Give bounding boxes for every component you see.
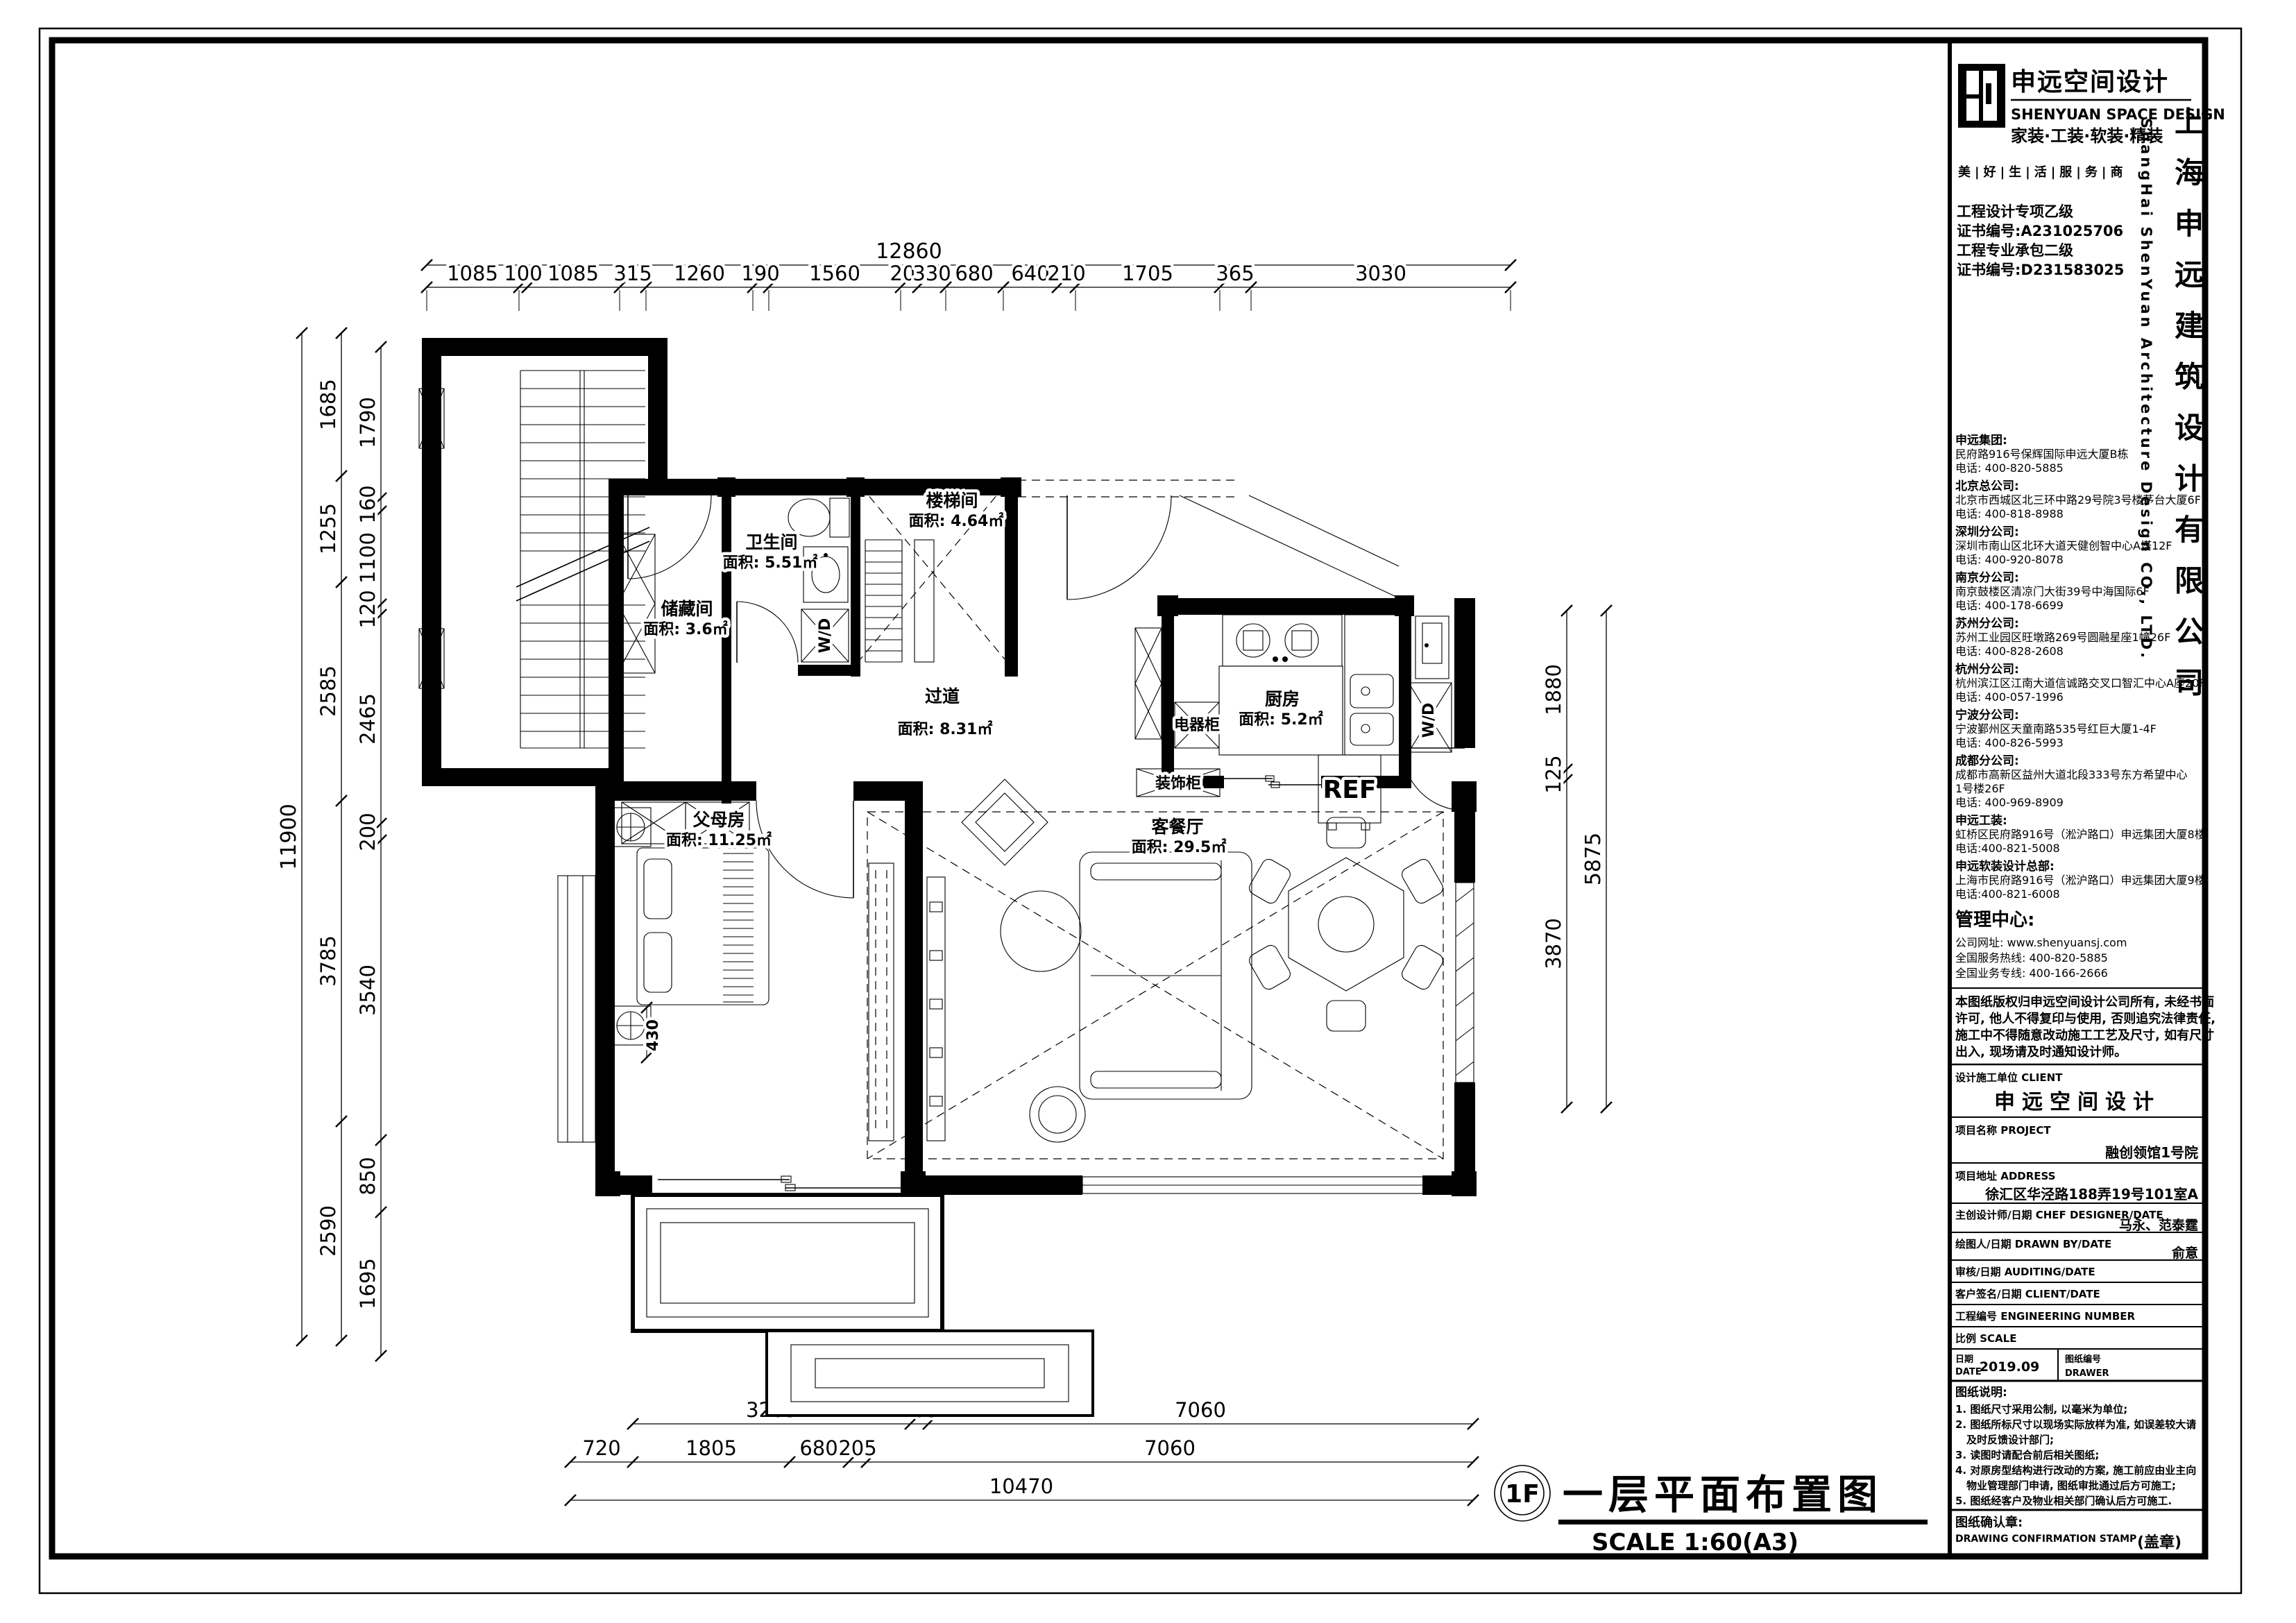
room-label-stairhall: 楼梯间	[926, 491, 978, 511]
room-area-living: 面积: 29.5㎡	[1132, 838, 1227, 856]
dim-left-mid: 2585	[316, 665, 340, 717]
dim-left-overall: 11900	[277, 804, 301, 869]
notes-title: 图纸说明:	[1955, 1385, 2007, 1400]
washer-dryer-label: W/D	[817, 618, 834, 654]
notes-line: 及时反馈设计部门;	[1966, 1434, 2054, 1446]
hall-door	[1067, 495, 1171, 600]
dim-top-seg: 1560	[809, 262, 860, 285]
office-line: 电话:400-821-5008	[1955, 842, 2060, 855]
date-row: 日期 DATE 2019.09 图纸编号 DRAWER	[1955, 1349, 2109, 1381]
notes-line: 5. 图纸经客户及物业相关部门确认后方可施工.	[1955, 1495, 2172, 1507]
office-line: 电话: 400-057-1996	[1955, 690, 2064, 704]
drawing-scale: SCALE 1:60(A3)	[1592, 1529, 1798, 1556]
row-label-scale: 比例 SCALE	[1955, 1332, 2016, 1345]
dim-left-mid: 1685	[316, 379, 340, 430]
notes-line: 物业管理部门申请, 图纸审批通过后方可施工;	[1966, 1479, 2176, 1492]
decor-cabinet-label: 装饰柜	[1155, 774, 1201, 792]
washer-dryer-label: W/D	[1420, 703, 1438, 738]
dimension-chain-left: 11900 1685 1255 2585 3785 2590 1790 160 …	[277, 328, 386, 1361]
dim-top-overall: 12860	[876, 239, 942, 264]
room-area-storage: 面积: 3.6㎡	[643, 620, 727, 638]
logo-slogan: 美|好|生|活|服|务|商	[1958, 164, 2127, 180]
dim-top-seg: 365	[1216, 262, 1254, 285]
confirmation-stamp: 图纸确认章: DRAWING CONFIRMATION STAMP (盖章)	[1955, 1515, 2182, 1552]
stair-hall: 楼梯间 面积: 4.64㎡	[860, 486, 1005, 662]
drawer-label-cn: 图纸编号	[2065, 1354, 2101, 1365]
office-line: 电话: 400-826-5993	[1955, 736, 2064, 749]
management-line: 全国业务专线: 400-166-2666	[1955, 967, 2108, 980]
parents-door	[756, 801, 853, 898]
office-title: 宁波分公司:	[1955, 708, 2019, 722]
office-title: 申远工装:	[1955, 813, 2007, 828]
copyright-line: 施工中不得随意改动施工工艺及尺寸, 如有尺寸	[1955, 1028, 2214, 1043]
notes: 图纸说明: 1. 图纸尺寸采用公制, 以毫米为单位; 2. 图纸所标尺寸以现场实…	[1955, 1385, 2196, 1507]
management-line: 全国服务热线: 400-820-5885	[1955, 951, 2108, 965]
dim-top-seg: 1705	[1122, 262, 1173, 285]
company-en-vertical: ShangHai ShenYuan Architecture Design CO…	[2138, 118, 2154, 661]
dim-430: 430	[645, 1019, 662, 1051]
dim-top-seg: 1260	[674, 262, 725, 285]
living-window-band	[1082, 1177, 1424, 1193]
kitchen-sliding-door	[1216, 776, 1325, 788]
office-line: 民府路916号保辉国际申远大厦B栋	[1955, 448, 2129, 461]
stamp-label-en: DRAWING CONFIRMATION STAMP	[1955, 1533, 2136, 1545]
office-line: 成都市高新区益州大道北段333号东方希望中心	[1955, 768, 2188, 781]
room-label-storage: 储藏间	[661, 599, 713, 619]
toilet	[788, 498, 849, 537]
stamp-label-cn: 图纸确认章:	[1955, 1515, 2023, 1530]
dim-left-mid: 1255	[316, 503, 340, 554]
dimension-chain-top: 12860 1085 100 1085 315 1260 190 1560 20…	[421, 239, 1516, 311]
dim-bottom-r1: 7060	[1175, 1398, 1226, 1422]
copyright-line: 许可, 他人不得复印与使用, 否则追究法律责任,	[1955, 1011, 2216, 1026]
right-wall-entry: W/D	[1402, 598, 1477, 1175]
dim-left-inner: 1100	[356, 532, 380, 584]
dim-left-mid: 3785	[316, 935, 340, 987]
dim-bottom-overall: 10470	[989, 1475, 1053, 1498]
dim-top-seg: 640	[1011, 262, 1049, 285]
notes-line: 4. 对原房型结构进行改动的方案, 施工前应由业主向	[1955, 1464, 2196, 1477]
sofa	[1080, 852, 1252, 1099]
dim-left-inner: 120	[356, 590, 380, 628]
room-area-stairhall: 面积: 4.64㎡	[909, 512, 1004, 530]
office-line: 1号楼26F	[1955, 782, 2005, 795]
row-label-drawn-by: 绘图人/日期 DRAWN BY/DATE	[1955, 1238, 2111, 1250]
drawing-sheet: 12860 1085 100 1085 315 1260 190 1560 20…	[0, 0, 2296, 1623]
row-label-client-date: 客户签名/日期 CLIENT/DATE	[1955, 1288, 2100, 1300]
fridge-label: REF	[1323, 776, 1377, 804]
stamp-seal: (盖章)	[2137, 1533, 2182, 1552]
dim-bottom-r2: 720	[582, 1436, 620, 1460]
office-line: 电话: 400-828-2608	[1955, 645, 2064, 658]
storage-room: 储藏间 面积: 3.6㎡	[618, 495, 728, 673]
room-label-kitchen: 厨房	[1265, 689, 1300, 709]
round-rug	[1001, 891, 1081, 971]
office-line: 上海市民府路916号（淞沪路口）申远集团大厦9楼	[1955, 874, 2206, 887]
dim-bottom-r2: 1805	[686, 1436, 737, 1460]
dim-top-seg: 210	[1047, 262, 1085, 285]
hallway: 过道 面积: 8.31㎡	[898, 495, 1171, 865]
office-line: 杭州滨江区江南大道信诚路交叉口智汇中心A座20F	[1955, 677, 2206, 690]
office-list: 申远集团: 民府路916号保辉国际申远大厦B栋 电话: 400-820-5885…	[1955, 433, 2206, 901]
dim-top-seg: 3030	[1355, 262, 1406, 285]
bathroom: W/D 卫生间 面积: 5.51㎡	[723, 498, 849, 663]
row-value-address: 徐汇区华泾路188弄19号101室A	[1984, 1186, 2198, 1203]
dim-top-seg: 680	[955, 262, 993, 285]
dim-left-inner: 2465	[356, 693, 380, 745]
logo-cn: 申远空间设计	[2011, 68, 2169, 96]
cert-line: 工程专业承包二级	[1957, 242, 2073, 259]
office-line: 虹桥区民府路916号（淞沪路口）申远集团大厦8楼	[1955, 828, 2206, 841]
room-area-kitchen: 面积: 5.2㎡	[1239, 711, 1323, 729]
bathroom-door	[737, 602, 798, 663]
dim-top-seg: 190	[741, 262, 779, 285]
dim-left-inner: 850	[356, 1157, 380, 1195]
kitchen: 电器柜 厨房 面积: 5.2㎡	[1157, 595, 1414, 788]
living-dining-room: 客餐厅 面积: 29.5㎡	[595, 812, 1477, 1196]
appliance-cabinet-label: 电器柜	[1174, 716, 1220, 734]
company-logo	[1958, 64, 2005, 128]
office-line: 电话:400-821-6008	[1955, 887, 2060, 901]
notes-line: 3. 读图时请配合前后相关图纸;	[1955, 1449, 2099, 1461]
copyright-line: 出入, 现场请及时通知设计师。	[1955, 1044, 2127, 1060]
dim-left-inner: 200	[356, 813, 380, 851]
dim-top-seg: 1085	[447, 262, 498, 285]
row-label-auditing: 审核/日期 AUDITING/DATE	[1955, 1266, 2095, 1278]
dim-left-inner: 3540	[356, 965, 380, 1016]
bed-offset-dim: 430	[641, 1002, 662, 1063]
parents-wardrobe-strip	[869, 863, 894, 1141]
stove	[1223, 615, 1342, 666]
office-title: 杭州分公司:	[1955, 662, 2019, 677]
dim-right-inner: 3870	[1542, 918, 1565, 969]
tv-console	[927, 877, 945, 1141]
dim-bottom-r2: 7060	[1144, 1436, 1196, 1460]
room-area-hallway: 面积: 8.31㎡	[898, 720, 993, 738]
office-line: 宁波鄞州区天童南路535号红巨大厦1-4F	[1955, 722, 2157, 736]
office-title: 深圳分公司:	[1955, 525, 2019, 539]
office-title: 成都分公司:	[1955, 754, 2019, 768]
cert-line: 证书编号:D231583025	[1957, 262, 2124, 278]
office-title: 申远软装设计总部:	[1955, 859, 2055, 874]
garden-planter	[767, 1331, 1093, 1416]
floor-tag: 1F	[1505, 1480, 1540, 1509]
title-block: 申远空间设计 SHENYUAN SPACE DESIGN 家装·工装·软装·精装…	[1950, 64, 2225, 1552]
dim-bottom-r2: 680	[799, 1436, 837, 1460]
dim-left-inner: 160	[356, 485, 380, 523]
dining-set	[1247, 817, 1445, 1031]
room-label-hallway: 过道	[925, 686, 960, 706]
communal-stair-block	[419, 338, 667, 786]
drawing-title: 一层平面布置图	[1563, 1471, 1883, 1518]
fridge: REF	[1318, 755, 1381, 830]
office-line: 电话: 400-920-8078	[1955, 553, 2064, 566]
bathroom-washer-dryer: W/D	[801, 609, 849, 662]
office-title: 苏州分公司:	[1955, 616, 2019, 631]
room-label-living: 客餐厅	[1151, 817, 1203, 837]
dim-top-seg: 1085	[547, 262, 599, 285]
row-label-engineering-number: 工程编号 ENGINEERING NUMBER	[1955, 1310, 2136, 1323]
office-line: 电话: 400-818-8988	[1955, 507, 2064, 520]
terrace-sliding-door	[658, 1176, 919, 1191]
side-table	[1030, 1087, 1085, 1142]
row-value-project: 融创领馆1号院	[2105, 1144, 2198, 1161]
notes-line: 2. 图纸所标尺寸以现场实际放样为准, 如误差较大请	[1955, 1418, 2196, 1431]
company-cn-vertical: 上海申远建筑设计有限公司	[2175, 105, 2204, 700]
drawer-label-en: DRAWER	[2065, 1368, 2109, 1379]
kitchen-right-window	[1415, 616, 1449, 679]
room-area-parents: 面积: 11.25㎡	[666, 831, 772, 849]
office-line: 电话: 400-820-5885	[1955, 461, 2064, 475]
dim-right-inner: 1880	[1542, 664, 1565, 715]
dimension-chain-right: 1880 125 3870 5875	[1542, 605, 1612, 1113]
date-value: 2019.09	[1980, 1359, 2040, 1375]
dim-left-mid: 2590	[316, 1205, 340, 1257]
dim-top-seg: 330	[912, 262, 951, 285]
office-line: 电话: 400-969-8909	[1955, 796, 2064, 809]
storage-door	[628, 495, 711, 579]
office-line: 电话: 400-178-6699	[1955, 599, 2064, 612]
row-label-address: 项目地址 ADDRESS	[1955, 1170, 2055, 1182]
row-value-client: 申远空间设计	[1994, 1090, 2161, 1114]
office-title: 申远集团:	[1955, 433, 2007, 448]
row-value-drawn-by: 俞意	[2171, 1245, 2198, 1261]
date-label-cn: 日期	[1955, 1354, 1973, 1365]
right-washer-dryer: W/D	[1409, 683, 1452, 752]
office-line: 北京市西城区北三环中路29号院3号楼茅台大厦6F	[1955, 493, 2201, 507]
room-area-bathroom: 面积: 5.51㎡	[723, 554, 818, 572]
void-dashed-lines	[1018, 480, 1399, 597]
dim-top-seg: 100	[504, 262, 542, 285]
dim-top-seg: 315	[613, 262, 652, 285]
hall-cabinet	[1135, 628, 1162, 739]
double-bed	[637, 848, 769, 1005]
right-window-hatch	[1456, 883, 1474, 1082]
office-line: 南京鼓楼区清凉门大街39号中海国际6F	[1955, 585, 2150, 598]
row-value-chef-designer: 马永、范泰霆	[2119, 1217, 2198, 1233]
room-label-bathroom: 卫生间	[745, 532, 797, 552]
kitchen-sink	[1345, 615, 1400, 755]
date-label-en: DATE	[1955, 1367, 1982, 1377]
terrace	[633, 1195, 942, 1331]
office-title: 南京分公司:	[1955, 570, 2019, 585]
copyright-line: 本图纸版权归申远空间设计公司所有, 未经书面	[1955, 994, 2214, 1010]
floor-plan-drawing: 12860 1085 100 1085 315 1260 190 1560 20…	[0, 0, 2296, 1623]
dim-bottom-r2: 205	[838, 1436, 876, 1460]
dim-left-inner: 1695	[356, 1258, 380, 1309]
drawing-title-group: 1F 一层平面布置图 SCALE 1:60(A3)	[1495, 1465, 1928, 1556]
bay-window	[558, 876, 595, 1142]
office-title: 北京总公司:	[1955, 479, 2019, 493]
management-title: 管理中心:	[1955, 910, 2034, 931]
dim-right-overall: 5875	[1581, 833, 1606, 885]
row-label-client: 设计施工单位 CLIENT	[1955, 1071, 2063, 1084]
cert-line: 证书编号:A231025706	[1957, 223, 2123, 239]
notes-line: 1. 图纸尺寸采用公制, 以毫米为单位;	[1955, 1403, 2127, 1416]
appliance-cabinet: 电器柜	[1174, 702, 1220, 748]
row-label-project: 项目名称 PROJECT	[1955, 1124, 2051, 1137]
cert-line: 工程设计专项乙级	[1957, 203, 2073, 220]
nightstand	[611, 808, 651, 847]
parents-room: 430 父母房 面积: 11.25㎡	[558, 781, 923, 1191]
management-line: 公司网址: www.shenyuansj.com	[1955, 936, 2127, 949]
room-label-parents: 父母房	[692, 810, 745, 830]
dim-right-inner: 125	[1542, 755, 1565, 793]
dim-left-inner: 1790	[356, 397, 380, 448]
kitchen-island	[1219, 666, 1343, 755]
